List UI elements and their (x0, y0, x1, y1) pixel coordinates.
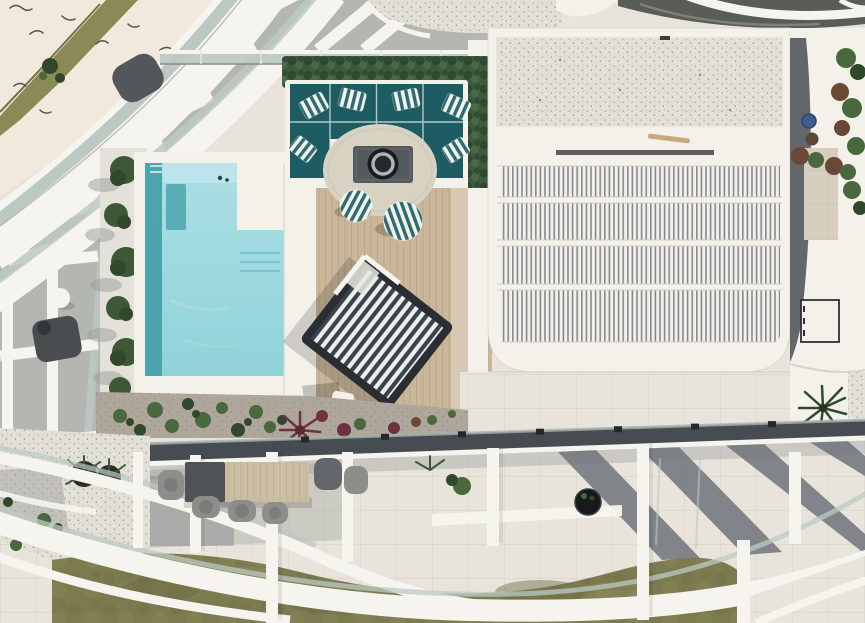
round-side-table (50, 288, 70, 308)
right-side-strip (790, 28, 865, 484)
pool-overflow-edge (145, 163, 162, 376)
vent-strip (556, 150, 714, 155)
gravel-roof-panel (497, 38, 782, 126)
fire-table (353, 146, 413, 183)
pool (134, 152, 316, 398)
louvre-building (488, 28, 790, 372)
terracotta-pot (806, 133, 819, 146)
pool-side-ledge (284, 160, 310, 396)
pool-bench (166, 184, 186, 230)
pool-robot (218, 176, 222, 180)
balcony-lounger (31, 314, 84, 363)
blue-umbrella (802, 114, 816, 128)
louvre-slat-roof (497, 158, 782, 354)
rooftop-aerial-photo: Top-down photograph: L-shaped turquoise … (0, 0, 865, 623)
rooftop-ac-unit (801, 300, 839, 342)
